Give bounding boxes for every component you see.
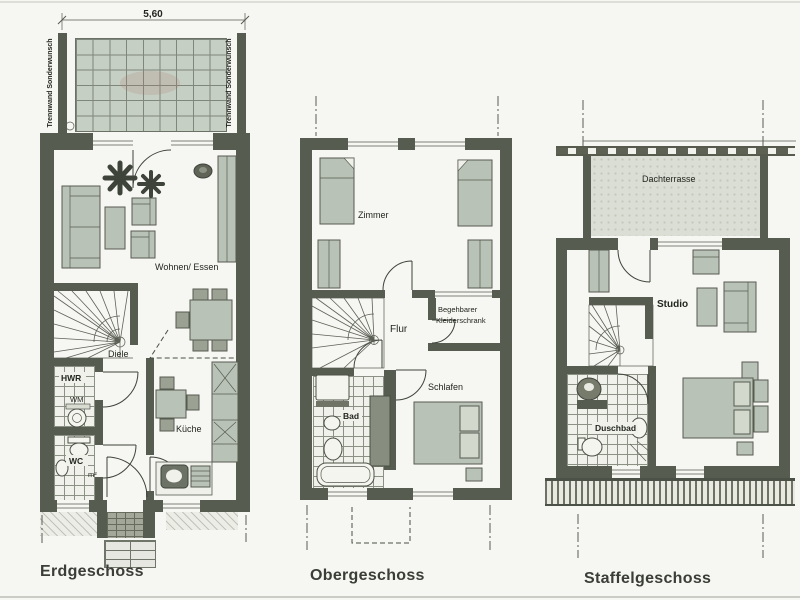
room-label-wohnen-essen: Wohnen/ Essen (155, 262, 218, 272)
floor-plan-obergeschoss: Zimmer Flur Begehbarer Kleiderschrank Sc… (300, 96, 512, 584)
room-label-hwr: HWR (61, 373, 81, 383)
table (697, 288, 717, 326)
room-label-wc: WC (69, 456, 83, 466)
og-stairs (312, 298, 384, 368)
half-wall (577, 400, 607, 409)
dining-table (176, 289, 232, 351)
og-projection-lines-top (316, 96, 498, 136)
armchair (132, 198, 156, 225)
sofa (62, 186, 100, 268)
dishwasher (191, 466, 210, 487)
kitchen-counter (212, 362, 238, 462)
washing-machine (66, 404, 90, 427)
cabinet (318, 240, 340, 288)
coffee-table (105, 207, 125, 249)
plant (105, 163, 135, 193)
floorplan-sheet: 5,60 Trennwand Sonderwunsch Trennwand So… (0, 0, 800, 600)
bed-single (458, 160, 492, 226)
bathtub (317, 463, 374, 486)
bathroom-fixtures (316, 375, 374, 486)
room-label-duschbad: Duschbad (595, 423, 636, 433)
room-label-kleiderschrank-1: Begehbarer (438, 305, 478, 314)
double-bed (683, 378, 768, 455)
nightstand (466, 468, 482, 481)
double-bed (414, 402, 482, 481)
room-label-zimmer: Zimmer (358, 210, 389, 220)
cabinet (468, 240, 492, 288)
room-label-bad: Bad (343, 411, 359, 421)
terrace-post-left (583, 156, 591, 238)
partition-label-left: Trennwand Sonderwunsch (47, 38, 54, 127)
sofa (724, 282, 756, 332)
wc-toilet (68, 437, 90, 457)
partition-label-right: Trennwand Sonderwunsch (226, 38, 233, 127)
eg-stairs (54, 291, 133, 358)
label-wc-area: m² (88, 470, 97, 479)
label-wm: WM (70, 395, 83, 404)
toilet (324, 416, 340, 430)
partition-wall-right: Trennwand Sonderwunsch (226, 33, 246, 133)
og-porch-projection (352, 507, 410, 543)
kitchen-table (156, 377, 199, 431)
bed-single (320, 158, 354, 224)
room-label-kueche: Küche (176, 424, 202, 434)
sg-projection-lines-bottom (578, 514, 763, 558)
floor-title-obergeschoss: Obergeschoss (310, 567, 425, 584)
terrace-drain (66, 122, 74, 130)
vanity (316, 375, 349, 400)
shelf (589, 250, 609, 292)
terrace-stain (120, 71, 180, 95)
room-label-studio: Studio (657, 299, 688, 310)
dimension-line: 5,60 (58, 9, 249, 30)
nightstand (737, 442, 753, 455)
armchair (693, 250, 719, 274)
floor-plan-staffelgeschoss: Dachterrasse Studio Duschbad Staffelgesc… (556, 100, 796, 587)
kitchen-sink-counter (156, 462, 212, 495)
floorplan-drawing: 5,60 Trennwand Sonderwunsch Trennwand So… (0, 0, 800, 600)
floor-title-erdgeschoss: Erdgeschoss (40, 563, 144, 580)
room-label-schlafen: Schlafen (428, 382, 463, 392)
lamp (194, 164, 212, 178)
room-label-dachterrasse: Dachterrasse (642, 174, 696, 184)
sg-projection-lines-top (583, 100, 763, 146)
room-label-flur: Flur (390, 324, 408, 335)
toilet (582, 438, 602, 456)
vanity-counter (316, 401, 349, 407)
sg-stairs (589, 297, 653, 366)
sideboard (218, 156, 236, 262)
dimension-label: 5,60 (143, 9, 163, 20)
bidet (324, 438, 342, 460)
floor-plan-erdgeschoss: 5,60 Trennwand Sonderwunsch Trennwand So… (40, 9, 250, 580)
wardrobe (370, 396, 390, 466)
terrace-post-right (760, 156, 768, 238)
plant (139, 172, 163, 196)
room-label-diele: Diele (108, 349, 129, 359)
floor-title-staffelgeschoss: Staffelgeschoss (584, 570, 711, 587)
duschbad-fixtures (577, 378, 650, 461)
armchair (131, 231, 155, 258)
partition-wall-left: Trennwand Sonderwunsch (47, 33, 67, 133)
room-label-kleiderschrank-2: Kleiderschrank (436, 316, 486, 325)
